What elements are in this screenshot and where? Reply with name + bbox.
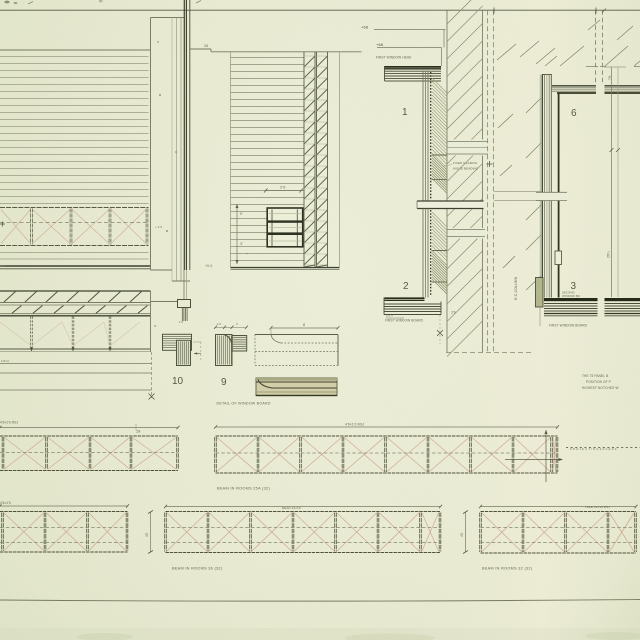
svg-text:9: 9 xyxy=(221,377,227,388)
svg-text:+ 0.5: + 0.5 xyxy=(155,225,163,229)
svg-text:READ 14×16: READ 14×16 xyxy=(282,506,301,510)
svg-text:THE 75 PANEL B: THE 75 PANEL B xyxy=(582,374,608,378)
svg-text:FIXED GLAZING: FIXED GLAZING xyxy=(453,161,478,165)
svg-text:8: 8 xyxy=(303,323,305,327)
svg-text:2'6: 2'6 xyxy=(280,186,286,190)
svg-text:WINDOW BD: WINDOW BD xyxy=(562,294,580,298)
svg-text:1: 1 xyxy=(402,107,408,118)
svg-text:10: 10 xyxy=(172,376,184,387)
svg-text:4'6×1'6: 4'6×1'6 xyxy=(0,501,11,505)
svg-text:4'0: 4'0 xyxy=(460,533,464,537)
svg-text:HIGHEST·NOTCHES·W: HIGHEST·NOTCHES·W xyxy=(582,386,619,390)
svg-text:POSITION OF P: POSITION OF P xyxy=(586,380,611,384)
svg-text:1½: 1½ xyxy=(217,322,222,326)
svg-text:BEAM IN ROOMS 25A (32): BEAM IN ROOMS 25A (32) xyxy=(217,487,270,491)
svg-text:9': 9' xyxy=(240,212,243,216)
svg-text:R.C.COLUMN: R.C.COLUMN xyxy=(514,276,518,300)
svg-text:+0.0: +0.0 xyxy=(205,264,213,268)
svg-text:O.: O. xyxy=(154,324,157,328)
svg-text:+66: +66 xyxy=(361,25,369,30)
svg-text:3: 3 xyxy=(236,322,238,326)
svg-text:1'6 ×: 1'6 × xyxy=(386,314,393,318)
svg-text:DETAIL OF WINDOW BOARD: DETAIL OF WINDOW BOARD xyxy=(217,402,271,406)
svg-text:+66: +66 xyxy=(376,42,384,47)
svg-text:BEAM IN ROOMS 32 (32): BEAM IN ROOMS 32 (32) xyxy=(482,567,533,571)
svg-text:6: 6 xyxy=(571,108,577,119)
svg-text:WOOD BEADING: WOOD BEADING xyxy=(453,167,479,171)
svg-text:4'0: 4'0 xyxy=(145,533,149,537)
svg-text:1'6×4: 1'6×4 xyxy=(1,359,9,363)
svg-text:3'6: 3'6 xyxy=(451,311,456,315)
svg-text:7½: 7½ xyxy=(608,75,612,80)
svg-text:BEAM IN ROOMS 36 (32): BEAM IN ROOMS 36 (32) xyxy=(172,567,223,571)
svg-text:TAKE 14×16 RSJ: TAKE 14×16 RSJ xyxy=(585,505,610,509)
svg-text:26: 26 xyxy=(204,44,208,48)
svg-text:4'6×1'0 RSJ: 4'6×1'0 RSJ xyxy=(345,423,364,427)
svg-text:+: + xyxy=(246,252,248,256)
svg-text:3': 3' xyxy=(240,242,243,246)
svg-text:1'0: 1'0 xyxy=(179,320,183,324)
svg-text:4'6×1'6 RSJ: 4'6×1'6 RSJ xyxy=(0,421,18,425)
svg-text:P R O J E C T I N G F A C E: P R O J E C T I N G F A C E O F xyxy=(570,447,617,451)
svg-text:2'6¾: 2'6¾ xyxy=(607,251,611,258)
svg-text:2: 2 xyxy=(403,281,409,292)
svg-text:19: 19 xyxy=(136,430,140,434)
svg-text:FIRST WINDOW HEAD: FIRST WINDOW HEAD xyxy=(376,56,412,60)
svg-text:FIRST WINDOW BOARD: FIRST WINDOW BOARD xyxy=(549,324,588,328)
svg-text:FIRST WINDOW BOARD: FIRST WINDOW BOARD xyxy=(385,319,424,323)
